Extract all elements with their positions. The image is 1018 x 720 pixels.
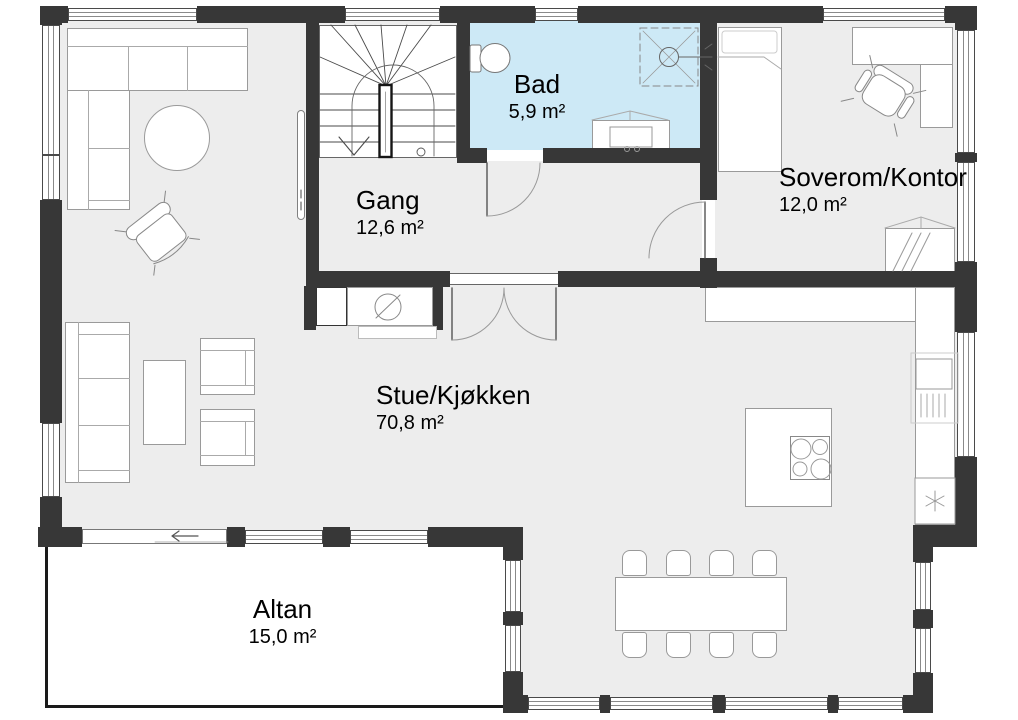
floor-plan: Bad 5,9 m² Gang 12,6 m² Soverom/Kontor 1… <box>0 0 1018 720</box>
room-label-stue: Stue/Kjøkken 70,8 m² <box>376 381 531 435</box>
bed-icon <box>718 27 782 172</box>
sofa-line <box>128 46 129 91</box>
wall-segment <box>913 610 933 628</box>
chair-icon <box>709 632 734 658</box>
wall-segment <box>700 20 717 200</box>
window-mullion <box>42 154 60 156</box>
window <box>42 423 60 497</box>
wall-segment <box>600 695 610 713</box>
sofa-line <box>88 90 89 210</box>
room-area: 15,0 m² <box>200 625 365 649</box>
kitchen-counter <box>915 287 955 525</box>
coffee-table-icon <box>143 360 186 445</box>
sofa-line <box>187 46 188 91</box>
chair-icon <box>752 632 777 658</box>
window <box>350 530 428 544</box>
window <box>838 697 903 710</box>
wall-segment <box>690 271 977 287</box>
room-name: Gang <box>356 186 424 216</box>
room-area: 5,9 m² <box>477 100 597 124</box>
cabinet-block <box>304 286 316 330</box>
armchair-line <box>200 421 255 422</box>
sofa-line <box>78 470 130 471</box>
wall-segment <box>955 6 977 30</box>
wall-segment <box>913 547 933 562</box>
room-name: Soverom/Kontor <box>779 163 967 193</box>
wall-segment <box>457 20 470 163</box>
armchair-line <box>200 350 255 351</box>
armchair-line <box>200 455 255 456</box>
sofa-line <box>78 334 130 335</box>
door-frame <box>487 150 543 161</box>
window <box>528 697 600 710</box>
wall-segment <box>440 6 535 23</box>
room-area: 12,6 m² <box>356 216 424 240</box>
wall-segment <box>903 695 933 713</box>
door-frame <box>450 273 558 285</box>
window <box>957 332 975 457</box>
sofa-line <box>67 46 248 47</box>
window <box>725 697 828 710</box>
wall-segment <box>40 200 62 423</box>
room-label-altan: Altan 15,0 m² <box>200 595 365 649</box>
wall-segment <box>306 271 450 287</box>
wardrobe-icon <box>885 228 955 272</box>
window <box>823 8 945 21</box>
sofa-line <box>88 148 130 149</box>
wall-segment <box>38 527 82 547</box>
window <box>42 25 60 200</box>
window <box>505 560 521 612</box>
window <box>345 8 440 21</box>
door-frame <box>702 200 715 258</box>
room-label-bad: Bad 5,9 m² <box>477 70 597 124</box>
chair-icon <box>666 550 691 576</box>
desk-icon <box>852 27 953 65</box>
corner-sofa-icon <box>67 90 130 210</box>
wall-segment <box>543 148 703 163</box>
room-name: Bad <box>477 70 597 100</box>
sliding-door-panel <box>297 110 305 220</box>
armchair-line <box>200 385 255 386</box>
kitchen-counter <box>705 287 917 322</box>
room-label-soverom: Soverom/Kontor 12,0 m² <box>779 163 967 217</box>
wall-segment <box>713 695 725 713</box>
cabinet-block <box>433 286 443 330</box>
wall-segment <box>457 148 487 163</box>
room-name: Altan <box>200 595 365 625</box>
sink-counter <box>347 287 433 326</box>
wall-segment <box>503 695 528 713</box>
cabinet <box>316 287 347 326</box>
chair-icon <box>622 550 647 576</box>
window <box>68 8 197 21</box>
window <box>915 628 931 673</box>
armchair-line <box>245 421 246 455</box>
wall-segment <box>503 547 523 560</box>
sofa-line <box>78 425 130 426</box>
chair-icon <box>666 632 691 658</box>
counter-tray <box>358 326 437 339</box>
corner-sofa-icon <box>67 28 248 91</box>
wall-segment <box>428 527 523 547</box>
wall-segment <box>227 527 245 547</box>
wall-segment <box>913 525 977 547</box>
wall-segment <box>955 153 977 162</box>
cooktop-icon <box>790 436 830 480</box>
sofa-icon <box>65 322 130 483</box>
room-label-gang: Gang 12,6 m² <box>356 186 424 240</box>
dining-table-icon <box>615 577 787 631</box>
wall-segment <box>828 695 838 713</box>
round-table-icon <box>144 105 210 171</box>
chair-icon <box>709 550 734 576</box>
window <box>245 530 323 544</box>
wall-segment <box>503 612 523 625</box>
chair-icon <box>622 632 647 658</box>
room-area: 70,8 m² <box>376 411 531 435</box>
room-area: 12,0 m² <box>779 193 967 217</box>
wall-segment <box>40 6 62 25</box>
window <box>535 8 578 21</box>
wall-segment <box>306 20 319 288</box>
window <box>957 30 975 153</box>
room-name: Stue/Kjøkken <box>376 381 531 411</box>
wall-segment <box>197 6 345 23</box>
window <box>610 697 713 710</box>
armchair-icon <box>200 409 255 466</box>
sofa-line <box>78 378 130 379</box>
wall-segment <box>323 527 350 547</box>
sofa-line <box>78 322 79 483</box>
sliding-terrace-door <box>82 529 227 544</box>
armchair-icon <box>200 338 255 395</box>
window <box>915 562 931 610</box>
sofa-line <box>88 200 130 201</box>
wall-segment <box>558 271 708 287</box>
chair-icon <box>752 550 777 576</box>
armchair-line <box>245 350 246 385</box>
desk-icon <box>920 64 953 128</box>
staircase <box>319 25 457 158</box>
window <box>505 625 521 672</box>
